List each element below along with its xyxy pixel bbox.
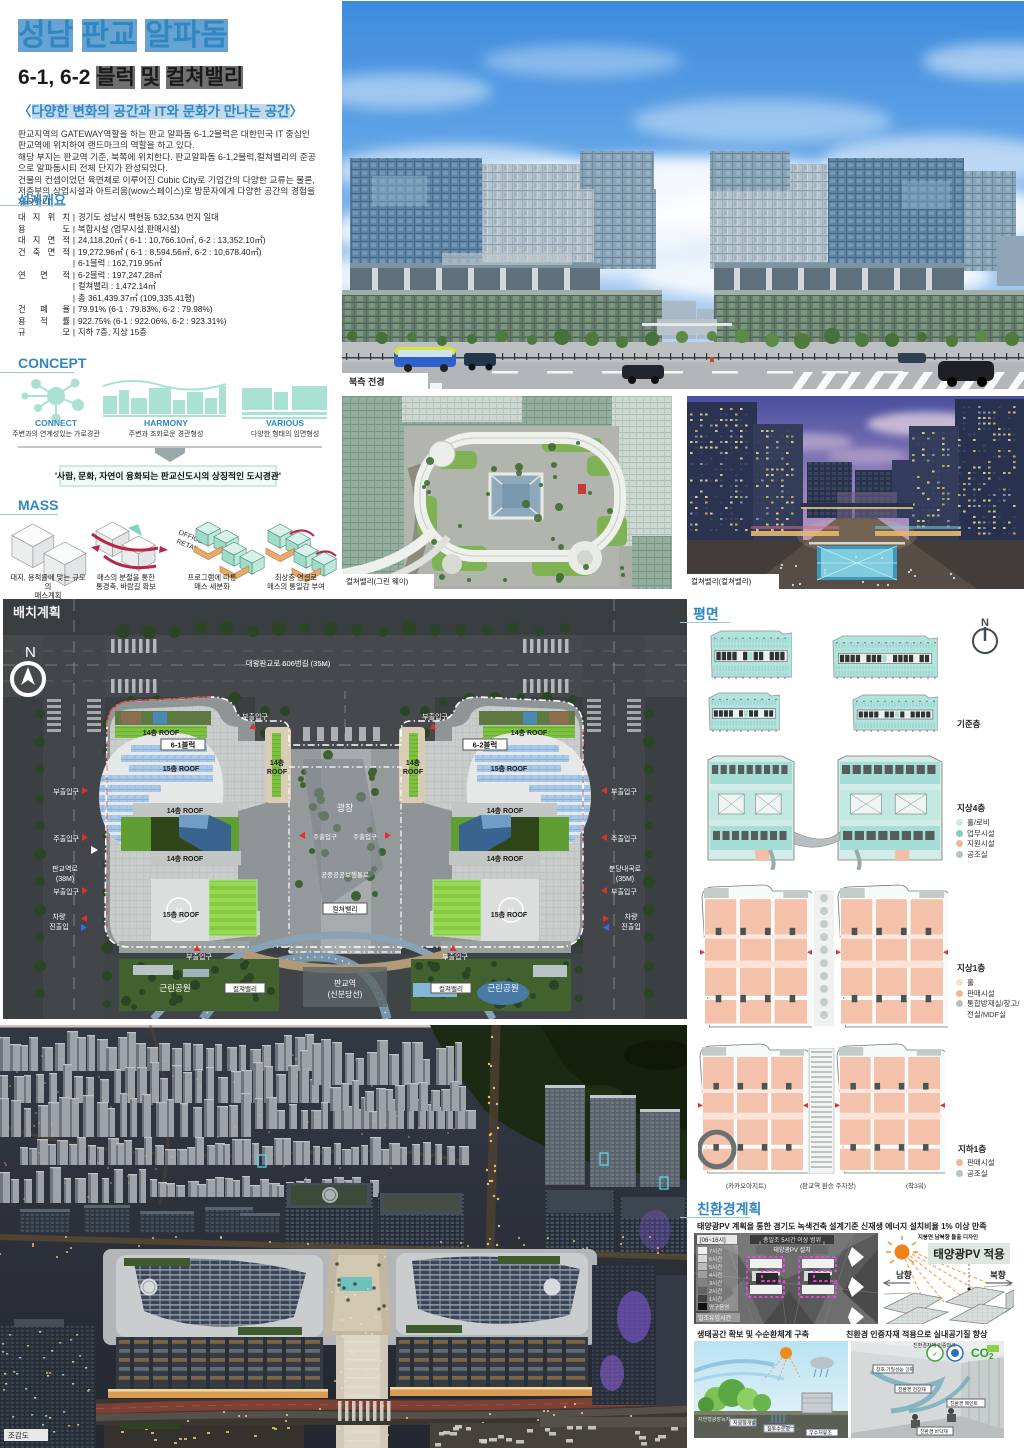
svg-text:주출입구: 주출입구	[353, 832, 377, 841]
svg-text:컬쳐밸리(그린 웨이): 컬쳐밸리(그린 웨이)	[346, 576, 409, 586]
svg-text:일조유입시간: 일조유입시간	[698, 1314, 732, 1322]
svg-text:ROOF: ROOF	[267, 769, 288, 776]
svg-text:부출입구: 부출입구	[53, 787, 79, 796]
svg-text:주변과 조화로운 경관형성: 주변과 조화로운 경관형성	[129, 429, 204, 438]
svg-text:친환경자재 인증마크: 친환경자재 인증마크	[913, 1342, 956, 1349]
svg-text:14층: 14층	[406, 758, 421, 767]
svg-text:N: N	[25, 644, 36, 661]
svg-text:14층 ROOF: 14층 ROOF	[511, 728, 548, 737]
svg-text:주출입구: 주출입구	[53, 834, 79, 843]
svg-text:부출입구: 부출입구	[53, 887, 79, 896]
svg-text:14층 ROOF: 14층 ROOF	[167, 806, 204, 815]
svg-text:14층 ROOF: 14층 ROOF	[487, 806, 524, 815]
svg-text:우수저류조: 우수저류조	[809, 1430, 832, 1437]
svg-text:HARMONY: HARMONY	[144, 418, 188, 428]
svg-text:15층 ROOF: 15층 ROOF	[491, 764, 528, 773]
svg-text:14층: 14층	[270, 758, 285, 767]
svg-text:(35M): (35M)	[616, 876, 634, 883]
svg-text:총일조 5시간 이상 범위: 총일조 5시간 이상 범위	[763, 1236, 821, 1244]
svg-text:근린공원: 근린공원	[159, 983, 190, 993]
svg-text:남향: 남향	[896, 1270, 912, 1280]
svg-text:컬쳐밸리: 컬쳐밸리	[439, 984, 463, 993]
svg-text:(신분당선): (신분당선)	[328, 989, 363, 999]
svg-text:(38M): (38M)	[56, 876, 74, 883]
svg-text:공중공공보행통로: 공중공공보행통로	[321, 870, 369, 879]
svg-text:컬쳐밸리(컬쳐밸리): 컬쳐밸리(컬쳐밸리)	[691, 576, 752, 586]
svg-text:판교역로: 판교역로	[52, 864, 78, 873]
svg-text:15층 ROOF: 15층 ROOF	[163, 764, 200, 773]
svg-text:광장: 광장	[337, 802, 354, 813]
svg-text:자연형광장녹지: 자연형광장녹지	[698, 1416, 730, 1423]
svg-text:친환경 페인트: 친환경 페인트	[950, 1400, 978, 1407]
svg-text:14층 ROOF: 14층 ROOF	[487, 854, 524, 863]
svg-text:진출입: 진출입	[49, 922, 68, 931]
svg-text:주변과의 연계성있는 가로경관: 주변과의 연계성있는 가로경관	[12, 429, 100, 438]
svg-text:3시간: 3시간	[709, 1279, 722, 1287]
svg-text:창호 기밀성능 강화: 창호 기밀성능 강화	[876, 1366, 915, 1373]
svg-text:진출입: 진출입	[621, 922, 640, 931]
svg-text:저영향개발: 저영향개발	[733, 1420, 756, 1427]
svg-text:컬쳐밸리: 컬쳐밸리	[233, 984, 257, 993]
svg-text:'사람, 문화, 자연이 융화되는 판교신도시의 상징적인: '사람, 문화, 자연이 융화되는 판교신도시의 상징적인 도시경관'	[55, 470, 281, 481]
svg-text:컬쳐밸리: 컬쳐밸리	[332, 905, 358, 914]
svg-text:조감도: 조감도	[8, 1430, 29, 1440]
svg-text:1시간: 1시간	[709, 1295, 722, 1303]
svg-text:배치계획: 배치계획	[13, 605, 61, 620]
svg-text:친환경 바닥재: 친환경 바닥재	[920, 1428, 948, 1435]
svg-text:차량: 차량	[53, 912, 66, 921]
svg-text:14층 ROOF: 14층 ROOF	[143, 728, 180, 737]
svg-text:태양광PV 설치: 태양광PV 설치	[773, 1246, 810, 1254]
svg-text:6-2블럭: 6-2블럭	[473, 740, 498, 750]
svg-text:대왕판교로 606번길 (35M): 대왕판교로 606번길 (35M)	[246, 659, 331, 668]
svg-text:4시간: 4시간	[709, 1271, 722, 1279]
svg-text:부출입구: 부출입구	[442, 952, 468, 961]
svg-text:14층 ROOF: 14층 ROOF	[167, 854, 204, 863]
svg-text:주출입구: 주출입구	[313, 832, 337, 841]
svg-text:영구음영: 영구음영	[709, 1303, 729, 1311]
svg-text:주출입구: 주출입구	[611, 834, 637, 843]
svg-text:부출입구: 부출입구	[422, 712, 448, 721]
svg-text:차량: 차량	[625, 912, 638, 921]
svg-text:근린공원: 근린공원	[487, 983, 518, 993]
svg-text:부출입구: 부출입구	[242, 712, 268, 721]
svg-text:5시간: 5시간	[709, 1263, 722, 1271]
svg-text:15층 ROOF: 15층 ROOF	[491, 910, 528, 919]
svg-text:부출입구: 부출입구	[186, 952, 212, 961]
svg-text:다양한 형태의 임면형성: 다양한 형태의 임면형성	[251, 429, 319, 438]
svg-text:✓: ✓	[932, 1352, 937, 1358]
svg-text:CONNECT: CONNECT	[35, 418, 78, 428]
svg-text:6-1블럭: 6-1블럭	[171, 740, 196, 750]
svg-text:2시간: 2시간	[709, 1287, 722, 1295]
svg-text:부출입구: 부출입구	[611, 887, 637, 896]
svg-text:6시간: 6시간	[709, 1255, 722, 1263]
svg-text:태양광PV 적용: 태양광PV 적용	[933, 1247, 1005, 1261]
svg-text:지붕면 남북향 돌출 디자인: 지붕면 남북향 돌출 디자인	[918, 1233, 978, 1241]
svg-text:북측 전경: 북측 전경	[349, 376, 385, 387]
svg-text:ROOF: ROOF	[403, 769, 424, 776]
svg-text:VARIOUS: VARIOUS	[266, 418, 304, 428]
svg-text:친환경 천장재: 친환경 천장재	[898, 1386, 926, 1393]
svg-text:부출입구: 부출입구	[611, 787, 637, 796]
svg-text:북향: 북향	[990, 1270, 1006, 1280]
svg-text:판교역: 판교역	[334, 978, 356, 988]
svg-text:7시간: 7시간	[709, 1247, 722, 1255]
svg-text:15층 ROOF: 15층 ROOF	[163, 910, 200, 919]
svg-text:[06~16시]: [06~16시]	[700, 1237, 726, 1244]
svg-text:분당내곡로: 분당내곡로	[609, 864, 642, 873]
